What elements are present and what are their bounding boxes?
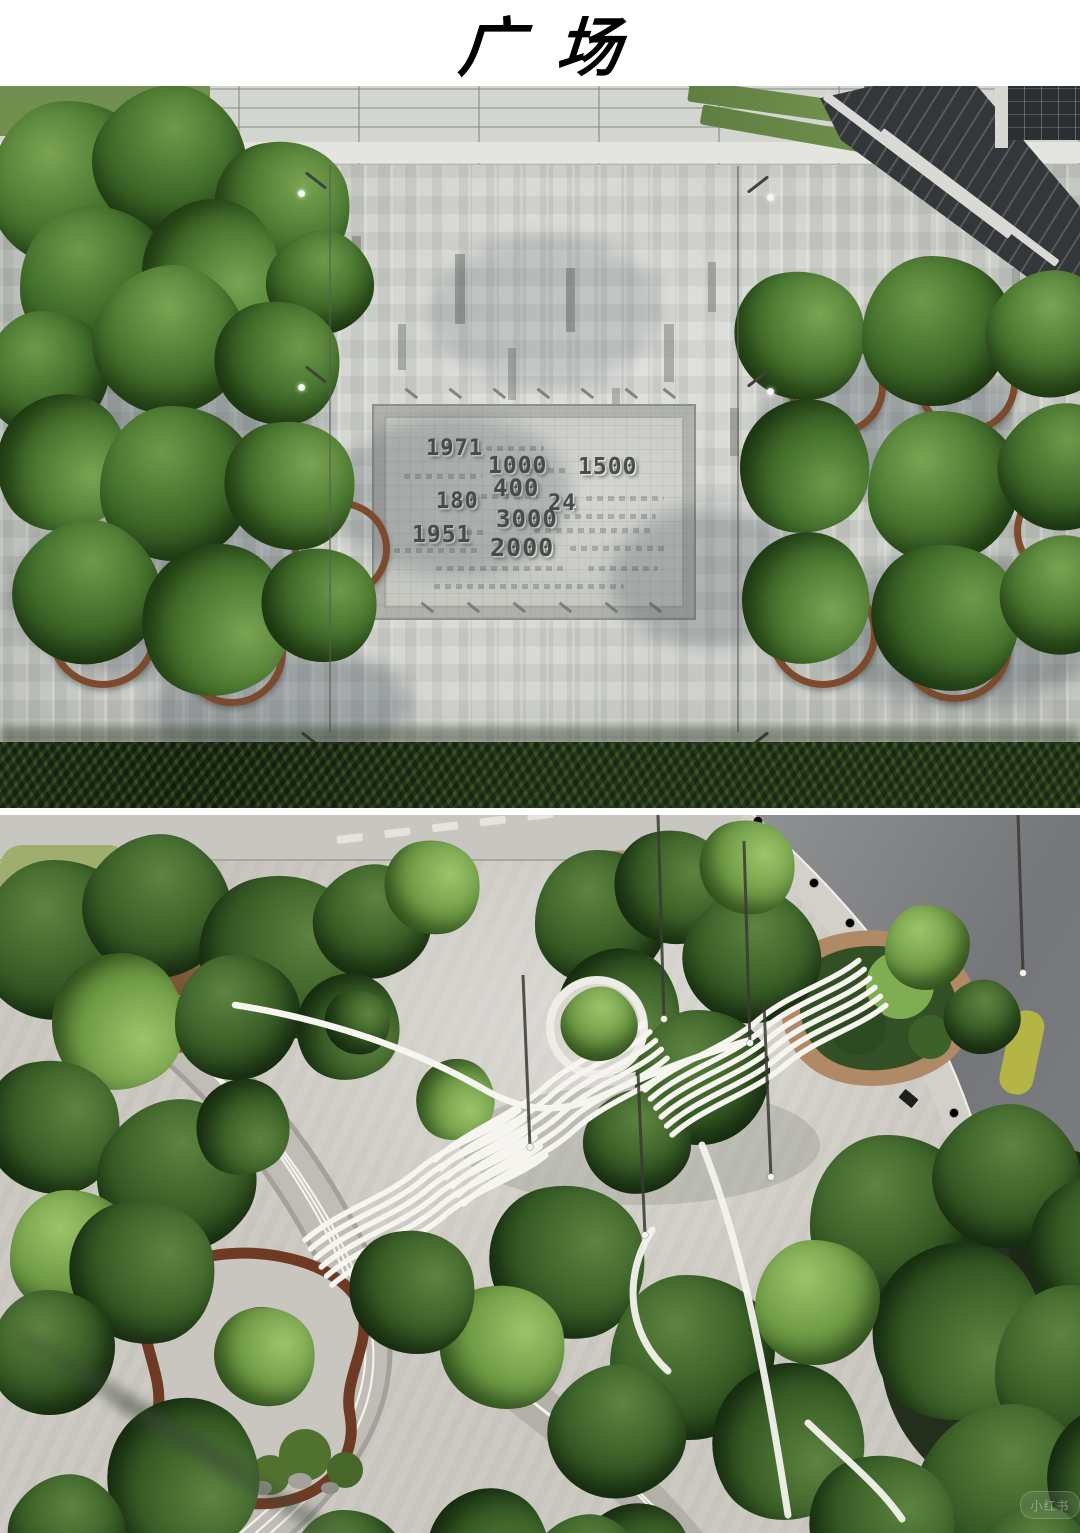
paving-joint-line — [329, 166, 331, 732]
light-pole-heads — [527, 970, 1027, 1239]
lamp-arm — [747, 175, 769, 193]
lamp-head — [767, 194, 774, 201]
engraved-text-row — [564, 514, 656, 519]
hedge-row — [0, 742, 1080, 808]
light-pole — [742, 372, 772, 396]
light-pole — [300, 174, 330, 198]
watermark-text: 小红书 — [1030, 1497, 1069, 1514]
lamp-head — [298, 190, 305, 197]
light-pole — [300, 368, 330, 392]
building-wall-edge — [995, 86, 1008, 148]
plaza-aerial-photo: 1971 1000 1500 400 180 24 3000 1951 2000 — [0, 86, 1080, 808]
engraved-text-row — [586, 496, 664, 501]
inscription-number: 1500 — [578, 454, 637, 480]
lamp-arm — [305, 365, 327, 383]
park-aerial-photo: 小红书 — [0, 815, 1080, 1533]
building-roof-corner — [1008, 86, 1080, 140]
page-title-text: 广场 — [422, 0, 658, 89]
lamp-head — [767, 388, 774, 395]
lamp-arm — [747, 369, 769, 387]
tree-shadow — [430, 236, 660, 386]
light-pole — [742, 178, 772, 202]
engraved-text-row — [434, 584, 624, 589]
page-title: 广场 — [0, 0, 1080, 86]
page: 广场 1971 1000 1500 400 180 24 3000 1951 2… — [0, 0, 1080, 1533]
lamp-head — [298, 384, 305, 391]
paving-joint-line — [737, 166, 739, 732]
white-slide-ribbons — [633, 1145, 902, 1519]
watermark-badge: 小红书 — [1020, 1491, 1080, 1519]
light-pole-masts — [523, 815, 1023, 1235]
lamp-arm — [305, 171, 327, 189]
